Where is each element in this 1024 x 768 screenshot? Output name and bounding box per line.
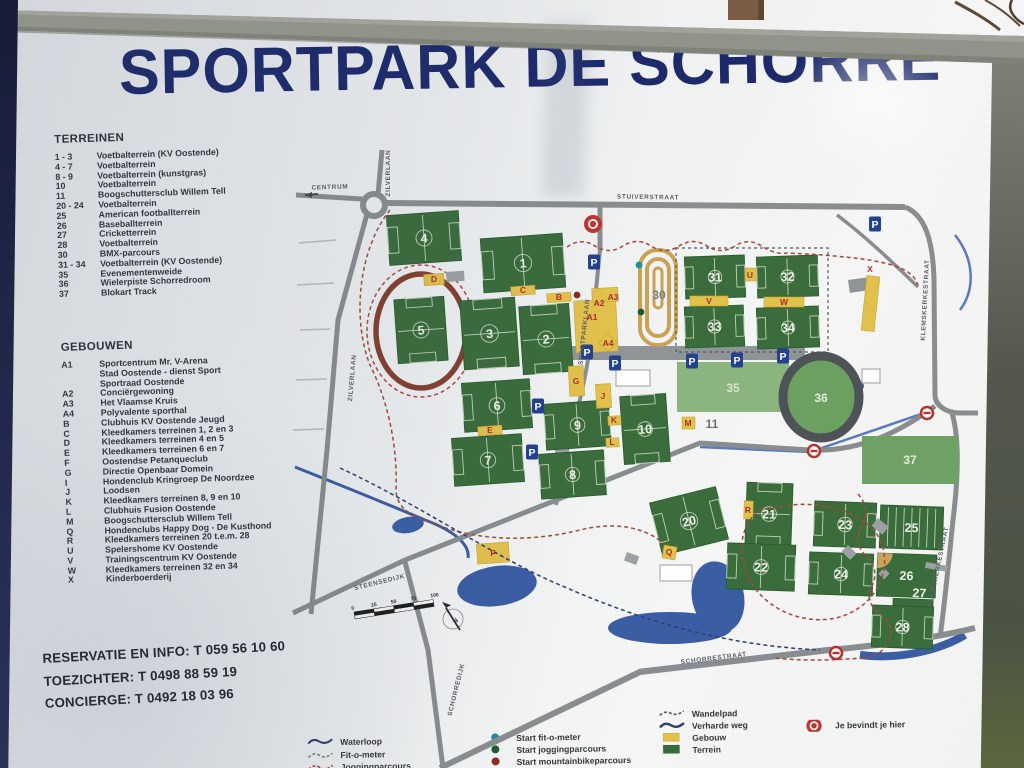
- svg-text:6: 6: [493, 399, 501, 413]
- you-are-here-marker: [586, 217, 600, 231]
- street-label: ZILVERLAAN: [347, 354, 358, 401]
- svg-text:P: P: [611, 358, 618, 370]
- svg-text:A4: A4: [603, 338, 614, 348]
- svg-text:28: 28: [895, 620, 909, 634]
- svg-text:2: 2: [542, 332, 550, 346]
- start-dot: [638, 309, 645, 316]
- svg-text:50: 50: [391, 599, 398, 606]
- svg-text:11: 11: [706, 417, 719, 431]
- field-22: 22: [726, 543, 796, 591]
- field-5: 5: [394, 296, 448, 363]
- parking-sign: P: [532, 399, 544, 414]
- svg-text:37: 37: [903, 453, 917, 467]
- svg-text:10: 10: [638, 422, 653, 437]
- no-entry-sign: [830, 647, 842, 659]
- field-24: 24: [808, 552, 873, 596]
- no-entry-sign: [921, 407, 933, 419]
- svg-text:P: P: [779, 351, 786, 363]
- scale-bar: 0255075100: [351, 592, 441, 619]
- field-3: 3: [460, 297, 520, 370]
- svg-text:W: W: [780, 297, 789, 307]
- street-label: KLEMSKERKESTRAAT: [920, 259, 931, 341]
- svg-text:K: K: [611, 415, 618, 425]
- field-1: 1: [480, 233, 566, 293]
- svg-text:33: 33: [707, 320, 721, 334]
- compass-north-arrow: N: [442, 602, 463, 630]
- svg-text:U: U: [747, 270, 753, 280]
- svg-text:1: 1: [519, 256, 527, 270]
- sign-panel: SPORTPARK DE SCHORRE TERREINEN 1 - 3Voet…: [0, 0, 1024, 768]
- svg-text:30: 30: [652, 288, 666, 302]
- svg-text:G: G: [573, 376, 580, 386]
- svg-text:0: 0: [351, 605, 355, 611]
- street-label: CENTRUM: [311, 183, 348, 191]
- parking-sign: P: [526, 445, 538, 460]
- svg-text:L: L: [609, 437, 614, 447]
- field-4: 4: [386, 211, 461, 266]
- park-map: 4153267981031323334202122232425262728: [0, 0, 1024, 768]
- svg-text:26: 26: [899, 569, 913, 583]
- parking-sign: P: [869, 217, 881, 232]
- svg-text:3: 3: [486, 327, 494, 341]
- parking-sign: P: [686, 354, 698, 369]
- street-label: STUIVERSTRAAT: [617, 193, 679, 201]
- svg-text:22: 22: [754, 560, 768, 574]
- svg-text:R: R: [745, 505, 751, 515]
- field-32: 32: [756, 255, 818, 298]
- parking-sign: P: [777, 349, 789, 364]
- field-6: 6: [461, 379, 532, 433]
- parking-sign: P: [588, 255, 600, 270]
- svg-text:P: P: [733, 355, 740, 367]
- field-34: 34: [756, 306, 819, 349]
- svg-text:7: 7: [484, 453, 492, 467]
- svg-text:25: 25: [904, 521, 918, 535]
- field-7: 7: [451, 434, 524, 487]
- svg-text:P: P: [871, 219, 878, 231]
- svg-text:4: 4: [420, 231, 428, 245]
- svg-text:B: B: [556, 292, 562, 302]
- field-28: 28: [871, 605, 933, 649]
- svg-text:P: P: [590, 257, 597, 269]
- field-2: 2: [519, 303, 574, 374]
- parking-sign: P: [609, 356, 621, 371]
- svg-text:100: 100: [430, 592, 439, 599]
- svg-text:F: F: [490, 548, 495, 558]
- svg-text:25: 25: [371, 602, 378, 609]
- svg-text:31: 31: [708, 270, 722, 284]
- street-label: STEENSEDIJK: [354, 573, 406, 592]
- svg-text:24: 24: [834, 567, 848, 581]
- start-dot: [636, 262, 643, 269]
- photo-of-park-sign: SPORTPARK DE SCHORRE TERREINEN 1 - 3Voet…: [0, 0, 1024, 768]
- field-20: 20: [649, 487, 728, 556]
- start-dot: [574, 292, 581, 299]
- svg-text:8: 8: [569, 468, 577, 482]
- svg-text:34: 34: [781, 321, 795, 335]
- street-label: SCHORREDIJK: [447, 662, 467, 716]
- no-entry-sign: [808, 445, 820, 457]
- svg-text:C: C: [520, 285, 526, 295]
- svg-text:N: N: [452, 617, 460, 626]
- svg-text:A2: A2: [594, 298, 605, 308]
- svg-text:36: 36: [814, 391, 828, 405]
- svg-text:27: 27: [912, 586, 926, 600]
- field-8: 8: [539, 450, 607, 499]
- svg-text:D: D: [431, 274, 437, 284]
- svg-text:X: X: [867, 264, 873, 274]
- svg-text:J: J: [601, 391, 606, 401]
- field-31: 31: [684, 255, 745, 299]
- svg-text:23: 23: [838, 518, 852, 532]
- field-25: 25: [879, 505, 943, 550]
- svg-text:E: E: [487, 425, 493, 435]
- street-label: ZILVERLAAN: [385, 150, 392, 197]
- svg-text:V: V: [706, 296, 712, 306]
- svg-text:32: 32: [780, 270, 794, 284]
- svg-text:P: P: [688, 356, 695, 368]
- svg-text:M: M: [684, 418, 691, 428]
- field-10: 10: [620, 393, 671, 464]
- svg-text:Q: Q: [666, 547, 673, 557]
- svg-text:A3: A3: [608, 292, 619, 302]
- svg-text:P: P: [534, 401, 541, 413]
- svg-text:5: 5: [417, 323, 425, 337]
- svg-text:35: 35: [726, 381, 740, 395]
- svg-text:P: P: [528, 447, 535, 459]
- parking-sign: P: [731, 353, 743, 368]
- field-33: 33: [684, 305, 744, 348]
- svg-text:9: 9: [574, 418, 582, 432]
- svg-text:21: 21: [762, 507, 776, 521]
